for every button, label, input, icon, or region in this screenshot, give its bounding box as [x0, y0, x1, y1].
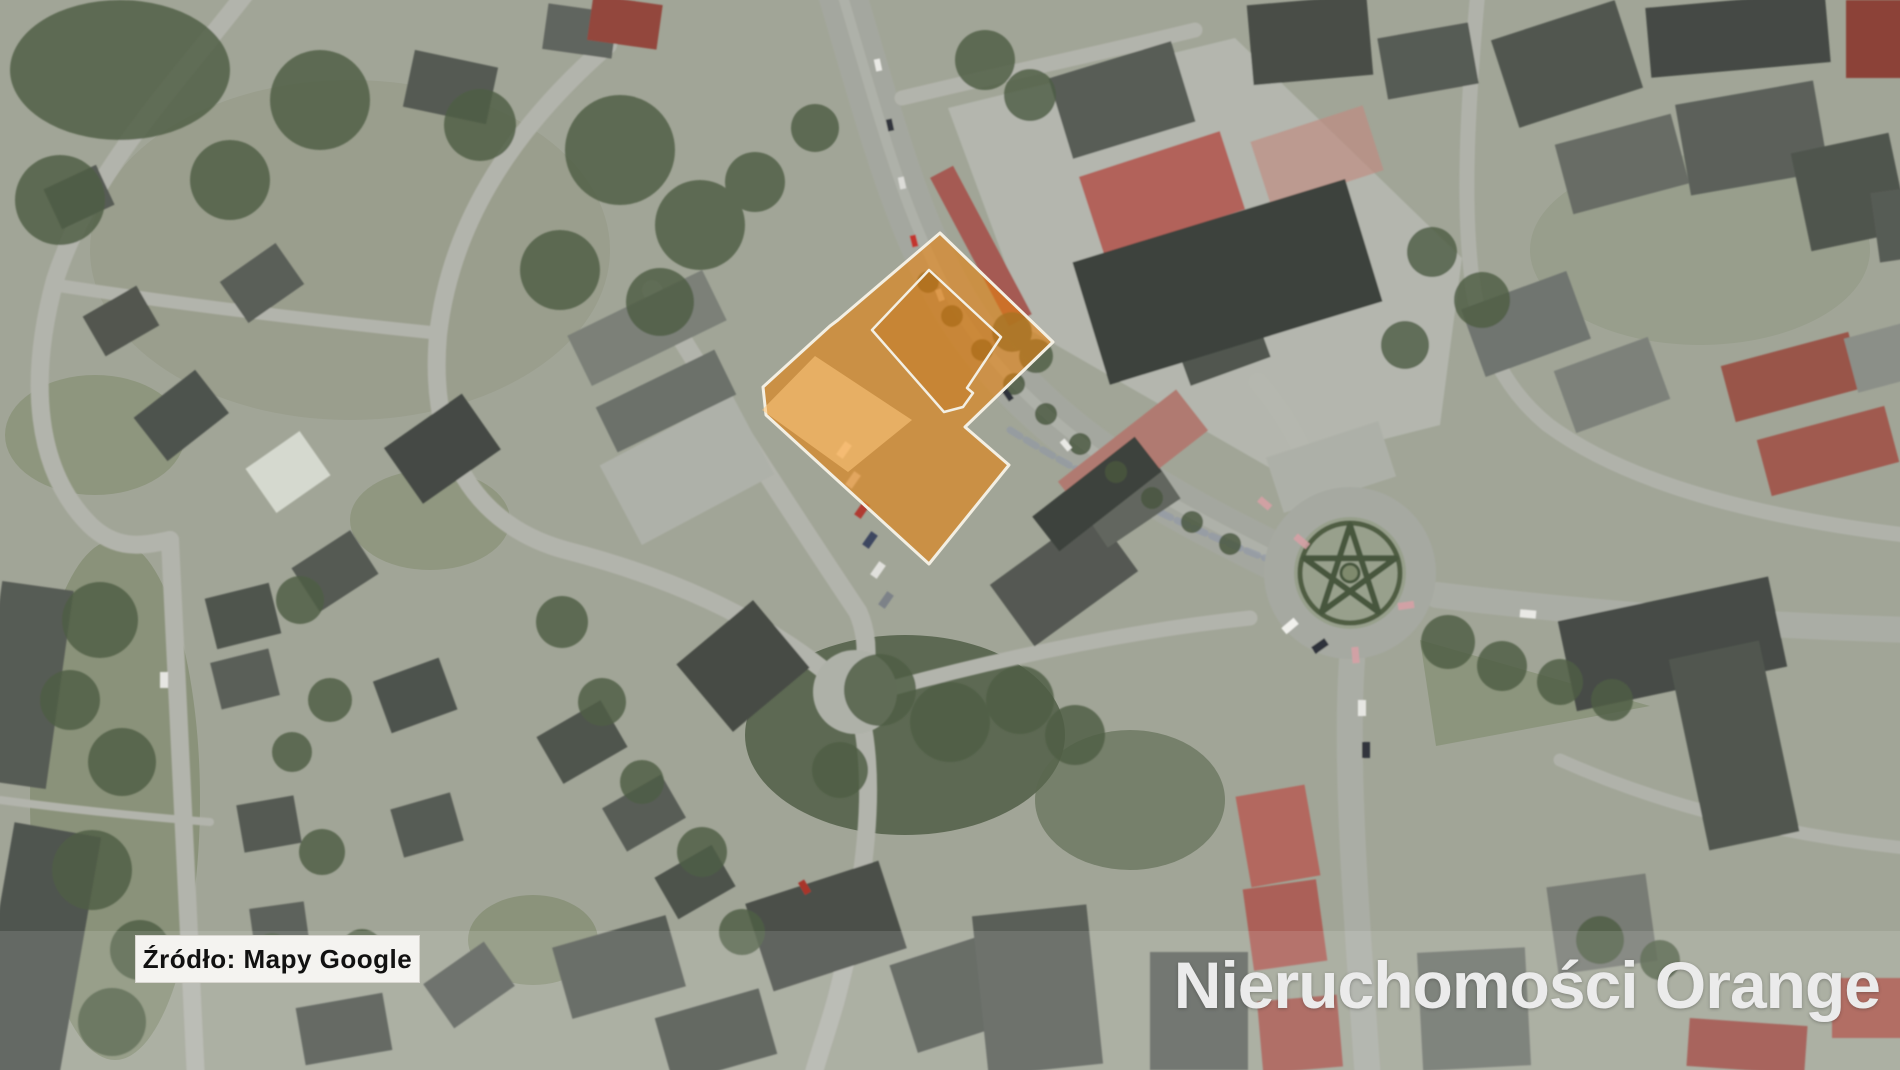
aerial-photo — [0, 0, 1900, 1070]
watermark: Nieruchomości Orange — [1174, 952, 1880, 1018]
map-source-label-text: Źródło: Mapy Google — [143, 944, 413, 975]
map-source-label: Źródło: Mapy Google — [135, 935, 420, 983]
watermark-text: Nieruchomości Orange — [1174, 948, 1880, 1022]
property-listing-map-screenshot: Źródło: Mapy Google Nieruchomości Orange — [0, 0, 1900, 1070]
